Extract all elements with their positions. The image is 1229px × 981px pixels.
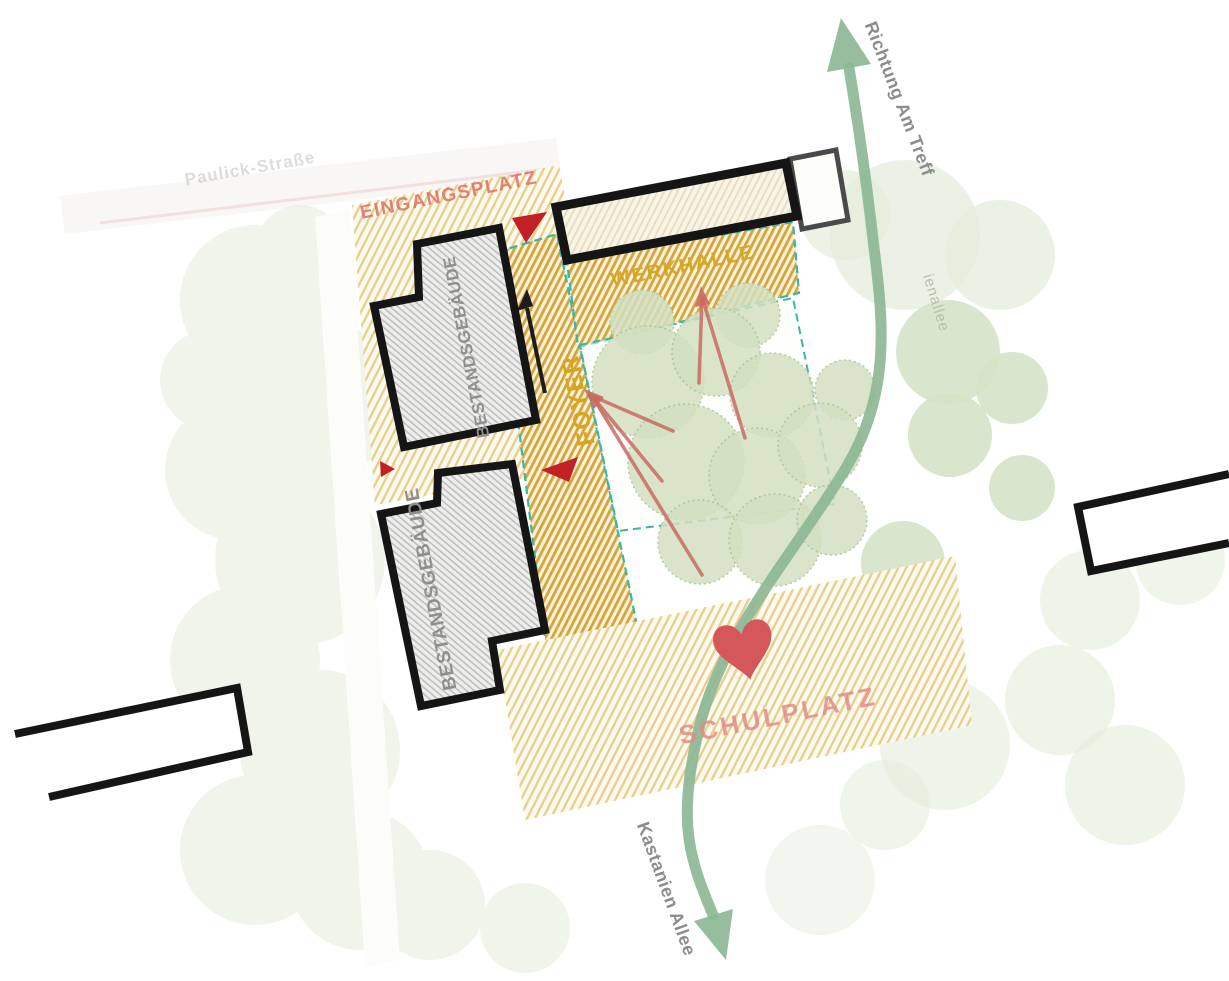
building-bottom-left (15, 688, 248, 797)
entrance-arrow-icon-mid (541, 457, 578, 482)
building-long-hall (556, 163, 797, 260)
courtyard-trees (592, 283, 875, 586)
route-arrowhead-south (694, 909, 733, 960)
plan-overlay-layer (0, 0, 1229, 981)
building-right-edge (1078, 474, 1229, 571)
site-plan-canvas: EINGANGSPLATZ WERKHALLE FOYER BESTANDSGE… (0, 0, 1229, 981)
entrance-arrow-icon-west (380, 461, 395, 477)
entrance-arrow-icon-north (512, 212, 547, 243)
sightline-arrowhead (695, 286, 710, 307)
